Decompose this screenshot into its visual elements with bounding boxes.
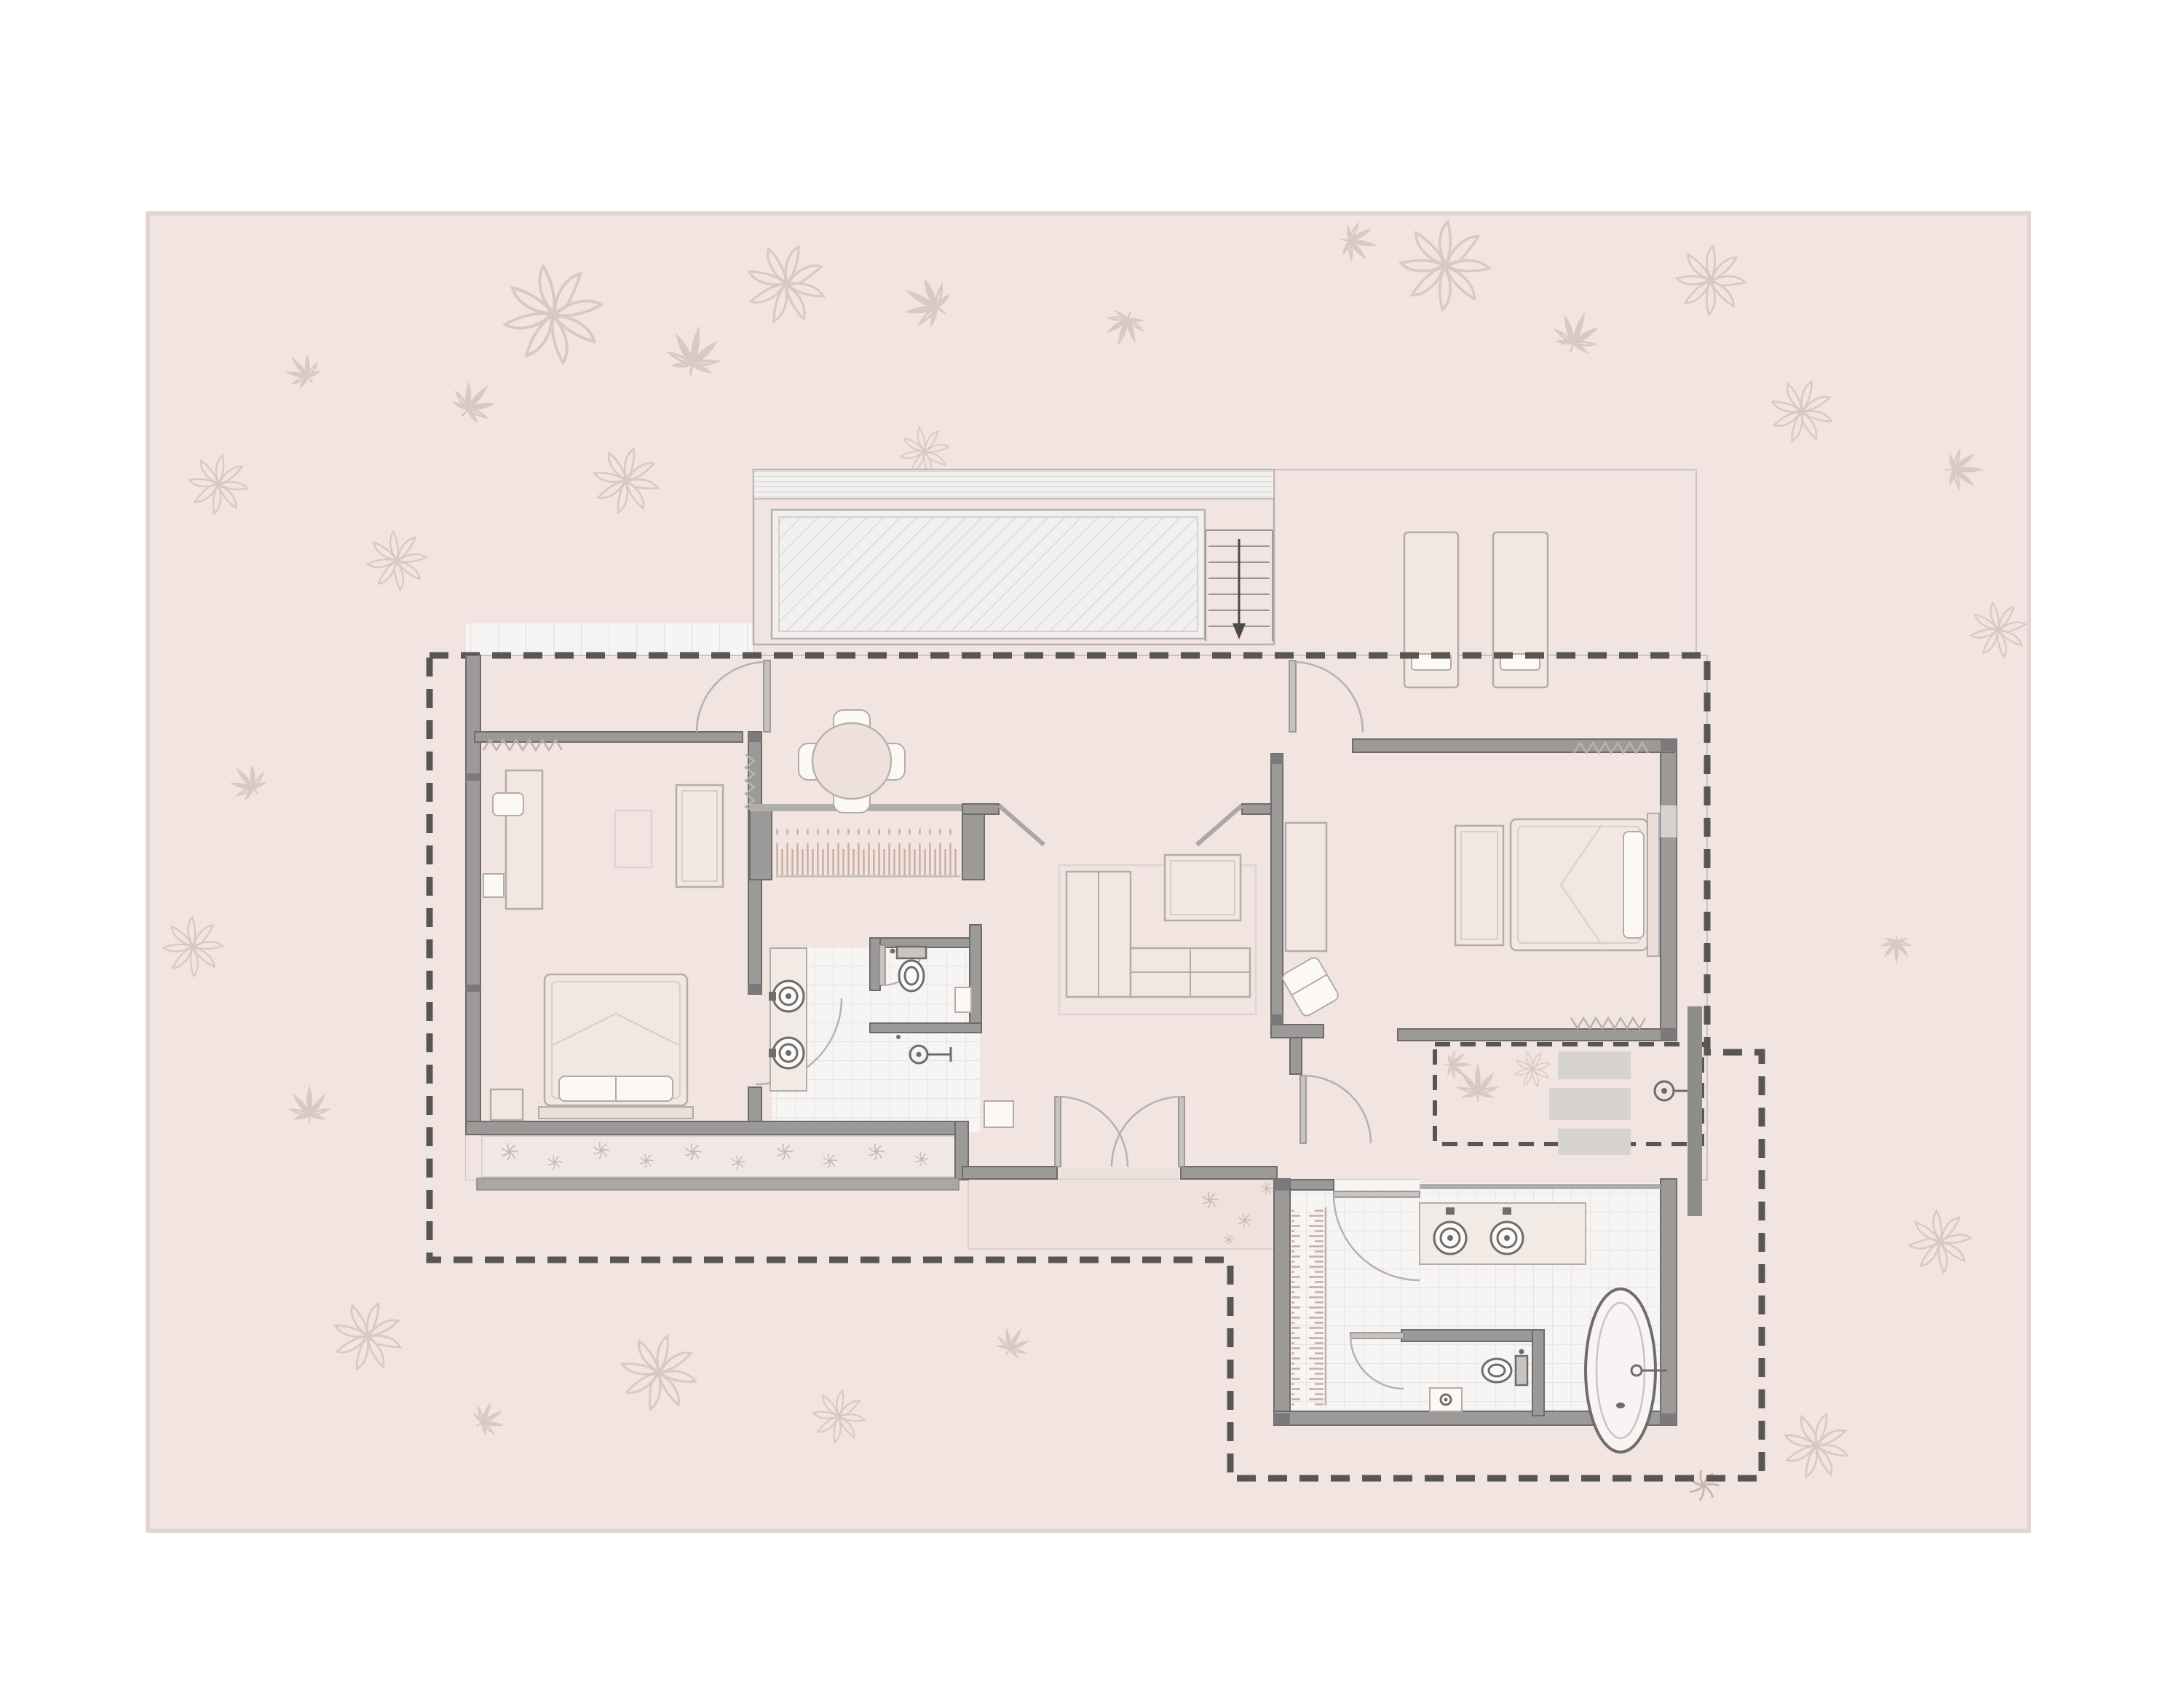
desk-2 bbox=[1286, 823, 1326, 951]
wall-wc2-east bbox=[1532, 1330, 1544, 1416]
wall-living-north-left bbox=[962, 804, 999, 814]
vanity-1 bbox=[770, 948, 807, 1091]
sun-lounger bbox=[1493, 532, 1548, 687]
entry-door-leaf-left bbox=[1055, 1097, 1061, 1167]
bed-1 bbox=[539, 974, 693, 1119]
wall-bedroom2-east bbox=[1661, 739, 1677, 1041]
wall-wing-east bbox=[1661, 1179, 1677, 1425]
wall-south-inner bbox=[466, 1121, 968, 1135]
stepping-stone bbox=[1558, 1129, 1631, 1155]
pool-deck-band bbox=[753, 470, 1274, 499]
wall-entry-left bbox=[962, 1167, 1057, 1179]
cabinet bbox=[984, 1101, 1013, 1127]
door-leaf-bedroom1 bbox=[764, 660, 770, 732]
stepping-stone bbox=[1549, 1088, 1631, 1120]
console-post-left bbox=[750, 810, 772, 880]
console-shelf-edge bbox=[776, 875, 960, 877]
bath-glass-wall bbox=[1420, 1184, 1661, 1189]
wall-wc2-north bbox=[1401, 1330, 1544, 1341]
nightstand bbox=[491, 1089, 523, 1120]
sun-lounger bbox=[1404, 532, 1458, 687]
door-leaf-wc2 bbox=[1350, 1333, 1404, 1338]
deck-strip-floor bbox=[466, 623, 753, 655]
wall-wc-south bbox=[870, 1023, 981, 1033]
wall-bath-stub bbox=[1290, 1180, 1334, 1190]
pool-area bbox=[753, 470, 1274, 644]
wall-hall-stub-h bbox=[1271, 1025, 1324, 1038]
pool-water-hatch bbox=[779, 517, 1198, 631]
side-unit bbox=[483, 874, 504, 897]
courtyard-fence bbox=[1688, 1006, 1702, 1216]
door-leaf-bedroom2 bbox=[1289, 660, 1296, 732]
desk-chair bbox=[493, 793, 523, 816]
niche bbox=[955, 987, 971, 1012]
entry-threshold bbox=[1061, 1168, 1178, 1178]
wall-bedroom2-west bbox=[1271, 754, 1283, 1025]
dining-table bbox=[812, 723, 891, 799]
bed-2 bbox=[1511, 813, 1659, 956]
console-post-right bbox=[962, 810, 984, 880]
small-basin-icon bbox=[1430, 1388, 1462, 1411]
bed-bench bbox=[1455, 826, 1503, 945]
door-leaf-hall bbox=[1300, 1076, 1306, 1143]
entry-door-leaf-right bbox=[1179, 1097, 1184, 1167]
daybed bbox=[676, 785, 723, 887]
dresser bbox=[506, 770, 542, 909]
stepping-stone bbox=[1558, 1052, 1631, 1079]
floor-plan-drawing bbox=[0, 0, 2184, 1688]
wall-wc-west bbox=[870, 938, 880, 990]
wall-bedroom2-south bbox=[1398, 1029, 1674, 1041]
coffee-table bbox=[1165, 855, 1241, 920]
door-leaf-wc bbox=[879, 945, 885, 985]
headboard-2 bbox=[1647, 813, 1659, 956]
floor-plan-page bbox=[0, 0, 2184, 1688]
door-leaf-masterbath bbox=[1334, 1191, 1420, 1197]
wall-living-north-right bbox=[1242, 804, 1271, 814]
wall-hall-stub-v bbox=[1290, 1038, 1302, 1074]
window-band-east bbox=[1661, 805, 1677, 837]
wall-west bbox=[466, 655, 480, 1132]
wardrobe-rail bbox=[1291, 1207, 1326, 1405]
pillow-2 bbox=[1623, 832, 1644, 938]
console-shelf-items bbox=[776, 829, 960, 875]
wall-wing-west bbox=[1274, 1179, 1290, 1425]
garden-low-wall bbox=[477, 1178, 959, 1190]
headboard bbox=[539, 1107, 693, 1119]
wall-entry-right bbox=[1181, 1167, 1277, 1179]
